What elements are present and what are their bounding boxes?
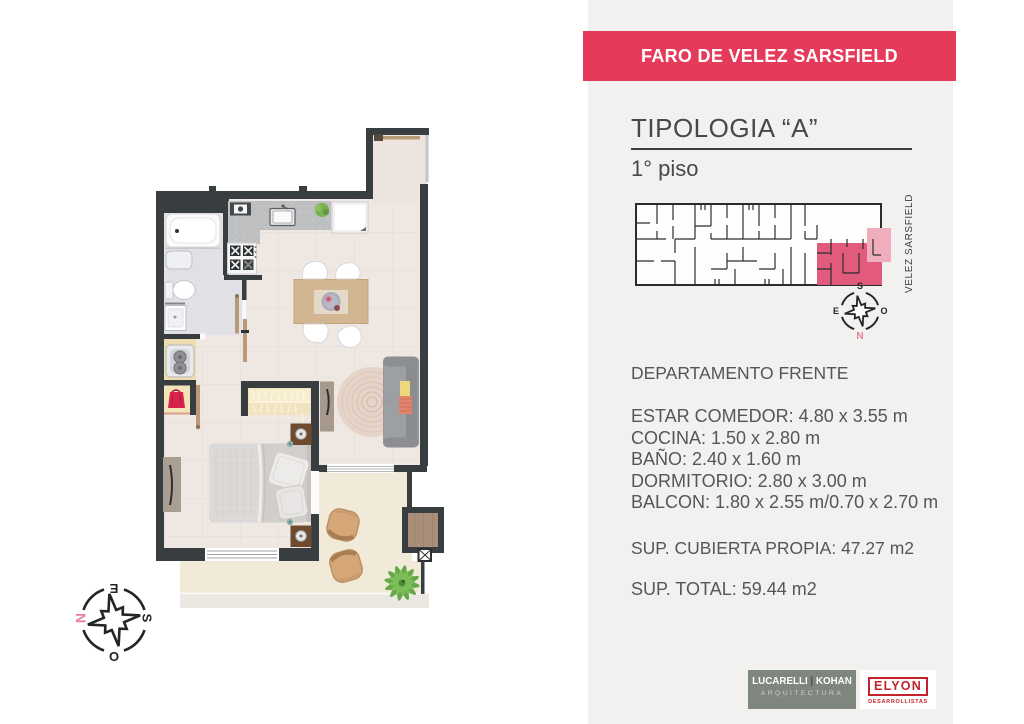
- svg-text:S: S: [140, 614, 155, 623]
- svg-text:E: E: [109, 581, 118, 596]
- svg-text:N: N: [73, 613, 89, 623]
- svg-text:O: O: [109, 649, 119, 664]
- svg-text:O: O: [880, 306, 887, 316]
- svg-text:E: E: [833, 306, 839, 316]
- svg-text:S: S: [857, 281, 863, 291]
- svg-text:N: N: [856, 331, 863, 342]
